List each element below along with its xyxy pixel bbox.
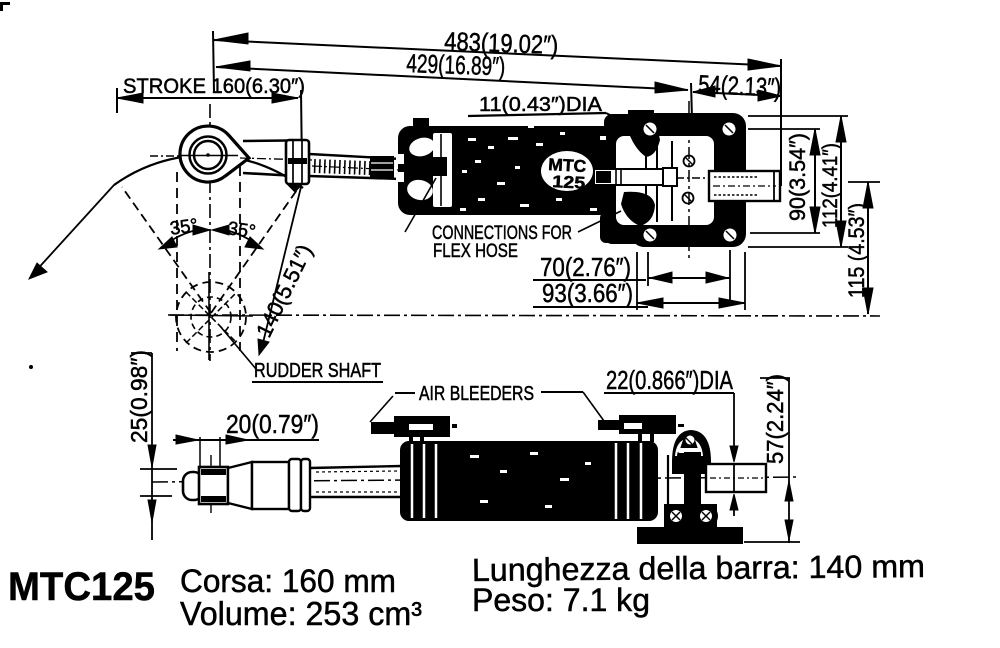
svg-text:11(0.43″)DIA: 11(0.43″)DIA (479, 94, 603, 116)
svg-text:FLEX HOSE: FLEX HOSE (433, 241, 518, 262)
svg-text:22(0.866″)DIA: 22(0.866″)DIA (606, 365, 733, 395)
svg-text:25(0.98″): 25(0.98″) (126, 350, 152, 443)
svg-text:RUDDER SHAFT: RUDDER SHAFT (254, 360, 381, 382)
svg-text:Peso: 7.1 kg: Peso: 7.1 kg (472, 582, 650, 618)
svg-text:Corsa: 160 mm: Corsa: 160 mm (180, 563, 396, 599)
svg-text:AIR BLEEDERS: AIR BLEEDERS (419, 383, 534, 405)
svg-text:54(2.13″): 54(2.13″) (698, 69, 782, 103)
svg-text:429(16.89″): 429(16.89″) (406, 48, 506, 81)
svg-text:125: 125 (552, 172, 586, 193)
svg-text:20(0.79″): 20(0.79″) (226, 409, 319, 439)
svg-text:57(2.24″): 57(2.24″) (762, 374, 788, 464)
svg-text:35°: 35° (226, 218, 257, 243)
svg-text:35°: 35° (169, 215, 200, 240)
svg-text:Volume: 253 cm³: Volume: 253 cm³ (180, 595, 422, 632)
svg-text:93(3.66″): 93(3.66″) (542, 278, 633, 308)
svg-text:STROKE 160(6.30″): STROKE 160(6.30″) (123, 75, 305, 98)
svg-text:115 (4.53″): 115 (4.53″) (844, 203, 869, 298)
svg-text:90(3.54″): 90(3.54″) (785, 133, 810, 221)
svg-text:112(4.41″): 112(4.41″) (819, 143, 842, 228)
svg-text:MTC125: MTC125 (8, 565, 155, 609)
